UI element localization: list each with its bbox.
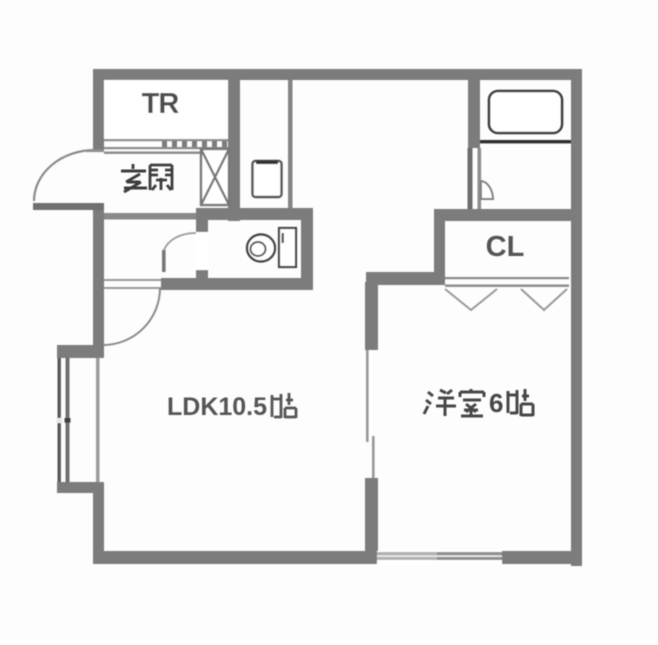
svg-text:TR: TR xyxy=(142,88,180,120)
svg-text:6: 6 xyxy=(489,388,503,418)
svg-text:CL: CL xyxy=(486,231,525,263)
svg-text:LDK10.5: LDK10.5 xyxy=(167,393,267,421)
